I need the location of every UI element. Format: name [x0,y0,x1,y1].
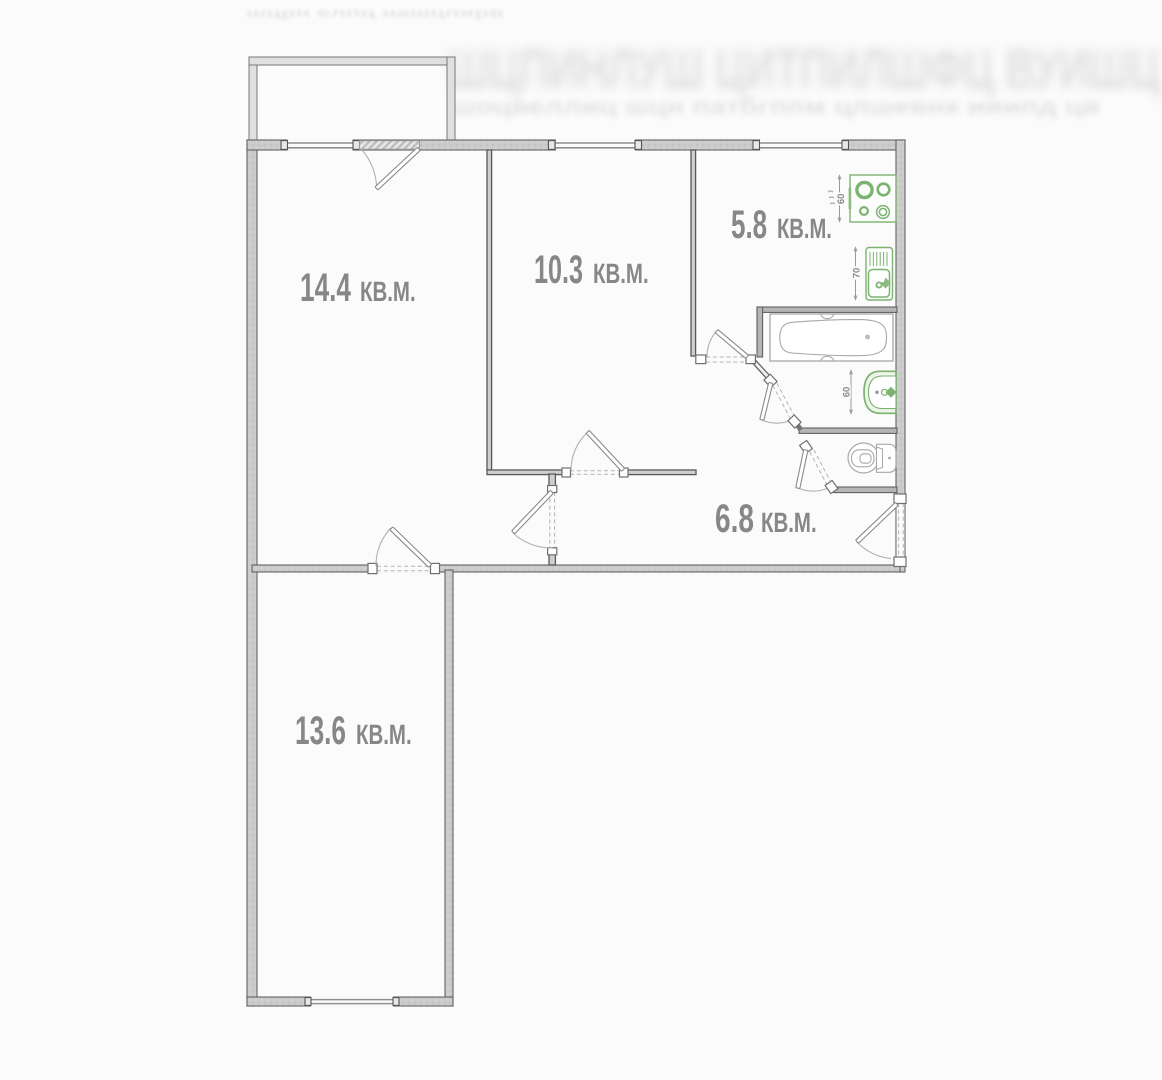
svg-text:КВ.М.: КВ.М. [360,276,416,307]
svg-text:КВ.М.: КВ.М. [593,258,649,289]
svg-text:10.3: 10.3 [534,248,583,292]
svg-text:шоцвеллиц шцн патбгппм цлшевнк: шоцвеллиц шцн патбгппм цлшевнк ииипд цв [452,93,1100,119]
svg-text:ШЦПИНЛУШ ЦИТПИЛШФЦ ВУИШЦ: ШЦПИНЛУШ ЦИТПИЛШФЦ ВУИШЦ [448,37,1160,100]
svg-text:14.4: 14.4 [300,266,351,310]
svg-text:5.8: 5.8 [731,203,767,247]
svg-text:КВ.М.: КВ.М. [777,213,832,244]
svg-text:КВ.М.: КВ.М. [761,507,817,538]
svg-text:60: 60 [836,194,847,205]
svg-text:60: 60 [842,387,853,398]
svg-text:шцрн елпц нашцпирв: шцрн елпц нашцпирв [246,5,504,20]
svg-text:КВ.М.: КВ.М. [356,719,412,750]
svg-text:6.8: 6.8 [715,497,754,541]
svg-text:70: 70 [851,268,862,279]
svg-text:13.6: 13.6 [295,709,346,753]
